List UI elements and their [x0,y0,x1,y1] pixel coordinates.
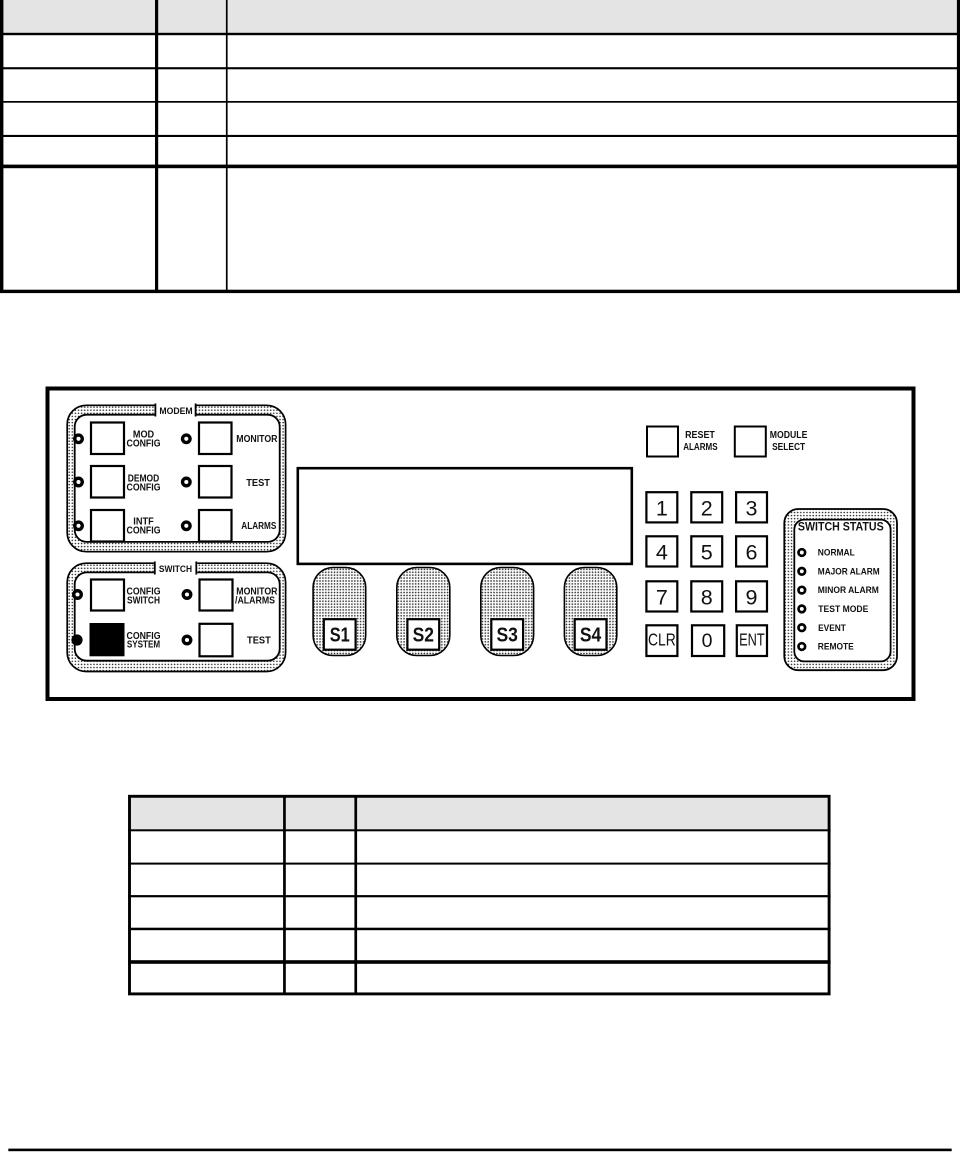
svg-text:ALARMS: ALARMS [683,442,718,453]
svg-text:TEST: TEST [247,636,271,647]
svg-text:RESET: RESET [685,430,715,441]
svg-text:SYSTEM: SYSTEM [127,640,160,651]
svg-text:CONFIG: CONFIG [127,438,161,449]
svg-text:REMOTE: REMOTE [818,642,854,652]
svg-text:NORMAL: NORMAL [818,548,855,558]
svg-text:SWITCH: SWITCH [159,564,192,575]
svg-text:S4: S4 [580,624,602,646]
svg-text:3: 3 [746,496,758,520]
svg-text:SELECT: SELECT [772,442,805,453]
svg-text:2: 2 [701,496,713,520]
svg-text:TEST: TEST [246,478,270,489]
svg-text:CONFIG: CONFIG [127,482,161,493]
svg-text:9: 9 [746,586,758,610]
svg-text:MODEM: MODEM [159,406,192,417]
svg-text:MAJOR ALARM: MAJOR ALARM [818,566,880,576]
svg-text:S2: S2 [413,624,434,646]
svg-text:8: 8 [701,586,713,610]
svg-text:6: 6 [746,541,758,565]
svg-text:ENT: ENT [739,630,765,650]
svg-text:CONFIG: CONFIG [127,525,161,536]
svg-text:4: 4 [656,541,668,565]
svg-text:SWITCH STATUS: SWITCH STATUS [798,522,884,534]
svg-text:1: 1 [656,496,668,520]
svg-text:5: 5 [701,541,713,565]
svg-text:TEST MODE: TEST MODE [818,604,868,614]
svg-text:/ALARMS: /ALARMS [235,595,275,606]
svg-text:SWITCH: SWITCH [127,595,160,606]
svg-text:S3: S3 [497,624,518,646]
svg-text:MODULE: MODULE [770,430,808,441]
svg-text:CLR: CLR [648,630,676,650]
svg-text:ALARMS: ALARMS [241,521,276,532]
svg-text:S1: S1 [330,624,350,646]
svg-text:EVENT: EVENT [818,623,846,633]
svg-text:MONITOR: MONITOR [236,434,278,445]
svg-text:0: 0 [702,630,713,652]
svg-text:MINOR ALARM: MINOR ALARM [818,585,879,595]
svg-text:7: 7 [656,586,668,610]
